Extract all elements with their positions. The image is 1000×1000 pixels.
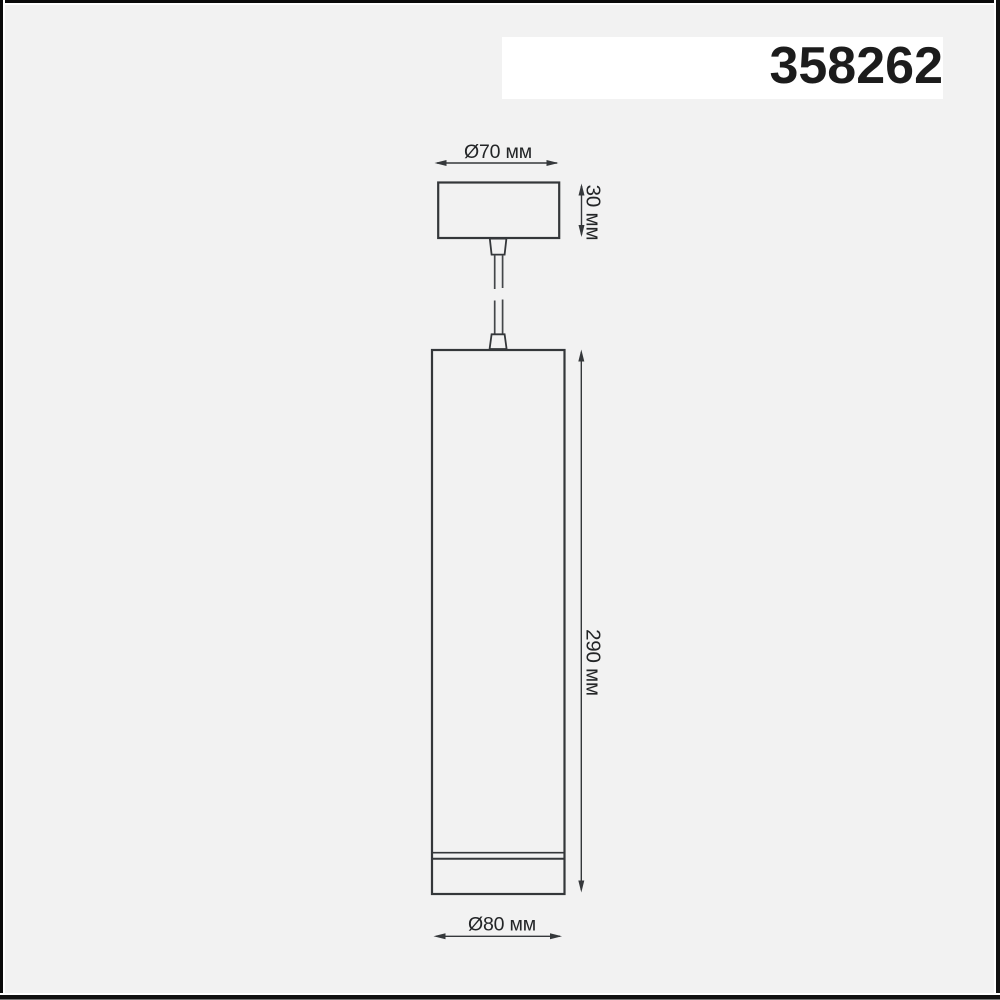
- svg-text:Ø80 мм: Ø80 мм: [468, 914, 536, 936]
- svg-text:Ø70 мм: Ø70 мм: [464, 141, 532, 163]
- svg-text:30 мм: 30 мм: [581, 185, 604, 241]
- svg-text:290 мм: 290 мм: [581, 629, 604, 696]
